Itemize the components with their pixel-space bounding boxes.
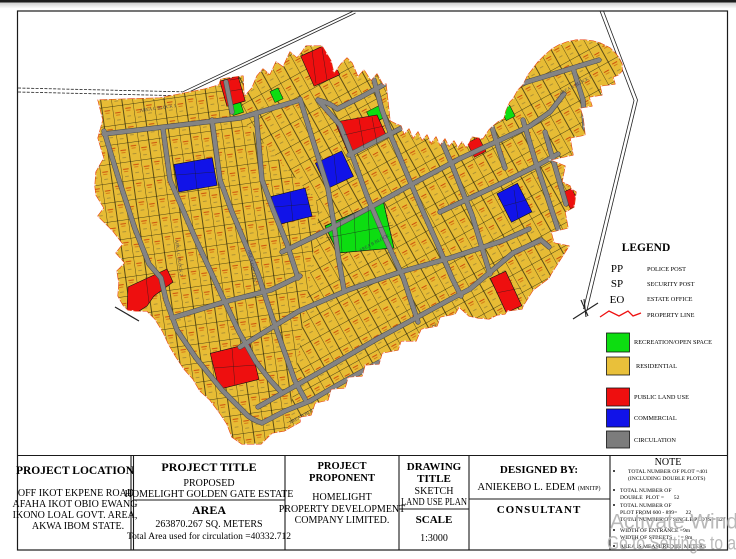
svg-text:POLICE POST: POLICE POST [647,266,686,273]
svg-text:PROJECT: PROJECT [317,461,366,472]
svg-text:OFF IKOT EKPENE ROAD: OFF IKOT EKPENE ROAD [18,488,134,499]
svg-text:TOTAL NUMBER OF: TOTAL NUMBER OF [620,503,671,509]
svg-text:COMPANY LIMITED.: COMPANY LIMITED. [295,515,390,526]
svg-text:RECREATION/OPEN SPACE: RECREATION/OPEN SPACE [634,339,712,346]
svg-text:SECURITY POST: SECURITY POST [647,281,695,288]
svg-text:PP: PP [611,263,623,275]
svg-text:AREA: AREA [192,503,226,517]
svg-text:PROPONENT: PROPONENT [309,473,375,484]
svg-text:COMMERCIAL: COMMERCIAL [634,415,677,422]
svg-text:EO: EO [610,294,625,306]
svg-text:DOUBLE PLOT = 52: DOUBLE PLOT = 52 [620,495,680,501]
svg-text:SP: SP [611,278,623,290]
svg-text:DESIGNED BY:: DESIGNED BY: [500,464,578,476]
svg-text:SCALE: SCALE [416,514,453,526]
svg-text:263870.267 SQ. METERS: 263870.267 SQ. METERS [155,519,262,530]
svg-text:SKETCH: SKETCH [415,486,454,497]
svg-text:PUBLIC LAND USE: PUBLIC LAND USE [634,394,689,401]
svg-text:RESIDENTIAL: RESIDENTIAL [636,363,677,370]
svg-text:TITLE: TITLE [417,473,451,485]
svg-text:TOTAL NUMBER OF PLOT =401: TOTAL NUMBER OF PLOT =401 [628,469,708,475]
svg-text:ESTATE OFFICE: ESTATE OFFICE [647,296,693,303]
svg-text:PROPERTY DEVELOPMENT: PROPERTY DEVELOPMENT [279,504,406,515]
svg-text:(INCLUDING DOUBLE PLOTS): (INCLUDING DOUBLE PLOTS) [628,475,706,482]
svg-text:HOMELIGHT GOLDEN GATE ESTATE: HOMELIGHT GOLDEN GATE ESTATE [125,489,294,500]
svg-text:PROPOSED: PROPOSED [183,478,234,489]
svg-text:Activate Wind: Activate Wind [610,511,736,534]
svg-text:1:3000: 1:3000 [420,533,448,544]
svg-text:NOTE: NOTE [655,457,682,468]
svg-text:PROJECT TITLE: PROJECT TITLE [161,460,256,474]
svg-text:TOTAL NUMBER OF: TOTAL NUMBER OF [620,488,671,494]
svg-text:IKONO LOAL GOVT. AREA,: IKONO LOAL GOVT. AREA, [13,510,138,521]
svg-text:CIRCULATION: CIRCULATION [634,437,676,444]
svg-text:Go to Settings to a: Go to Settings to a [607,533,736,555]
svg-text:Total Area used for circulatio: Total Area used for circulation =40332.7… [127,531,291,542]
svg-text:CONSULTANT: CONSULTANT [497,504,582,516]
svg-text:LEGEND: LEGEND [622,242,671,254]
svg-text:DRAWING: DRAWING [407,461,462,473]
svg-text:LAND USE PLAN: LAND USE PLAN [401,497,467,508]
svg-text:AKWA IBOM STATE.: AKWA IBOM STATE. [32,521,124,532]
svg-text:AFAHA IKOT OBIO EWANG: AFAHA IKOT OBIO EWANG [13,499,138,510]
svg-text:HOMELIGHT: HOMELIGHT [312,492,371,503]
svg-text:PROPERTY LINE: PROPERTY LINE [647,312,695,319]
svg-text:PROJECT LOCATION: PROJECT LOCATION [16,465,135,477]
